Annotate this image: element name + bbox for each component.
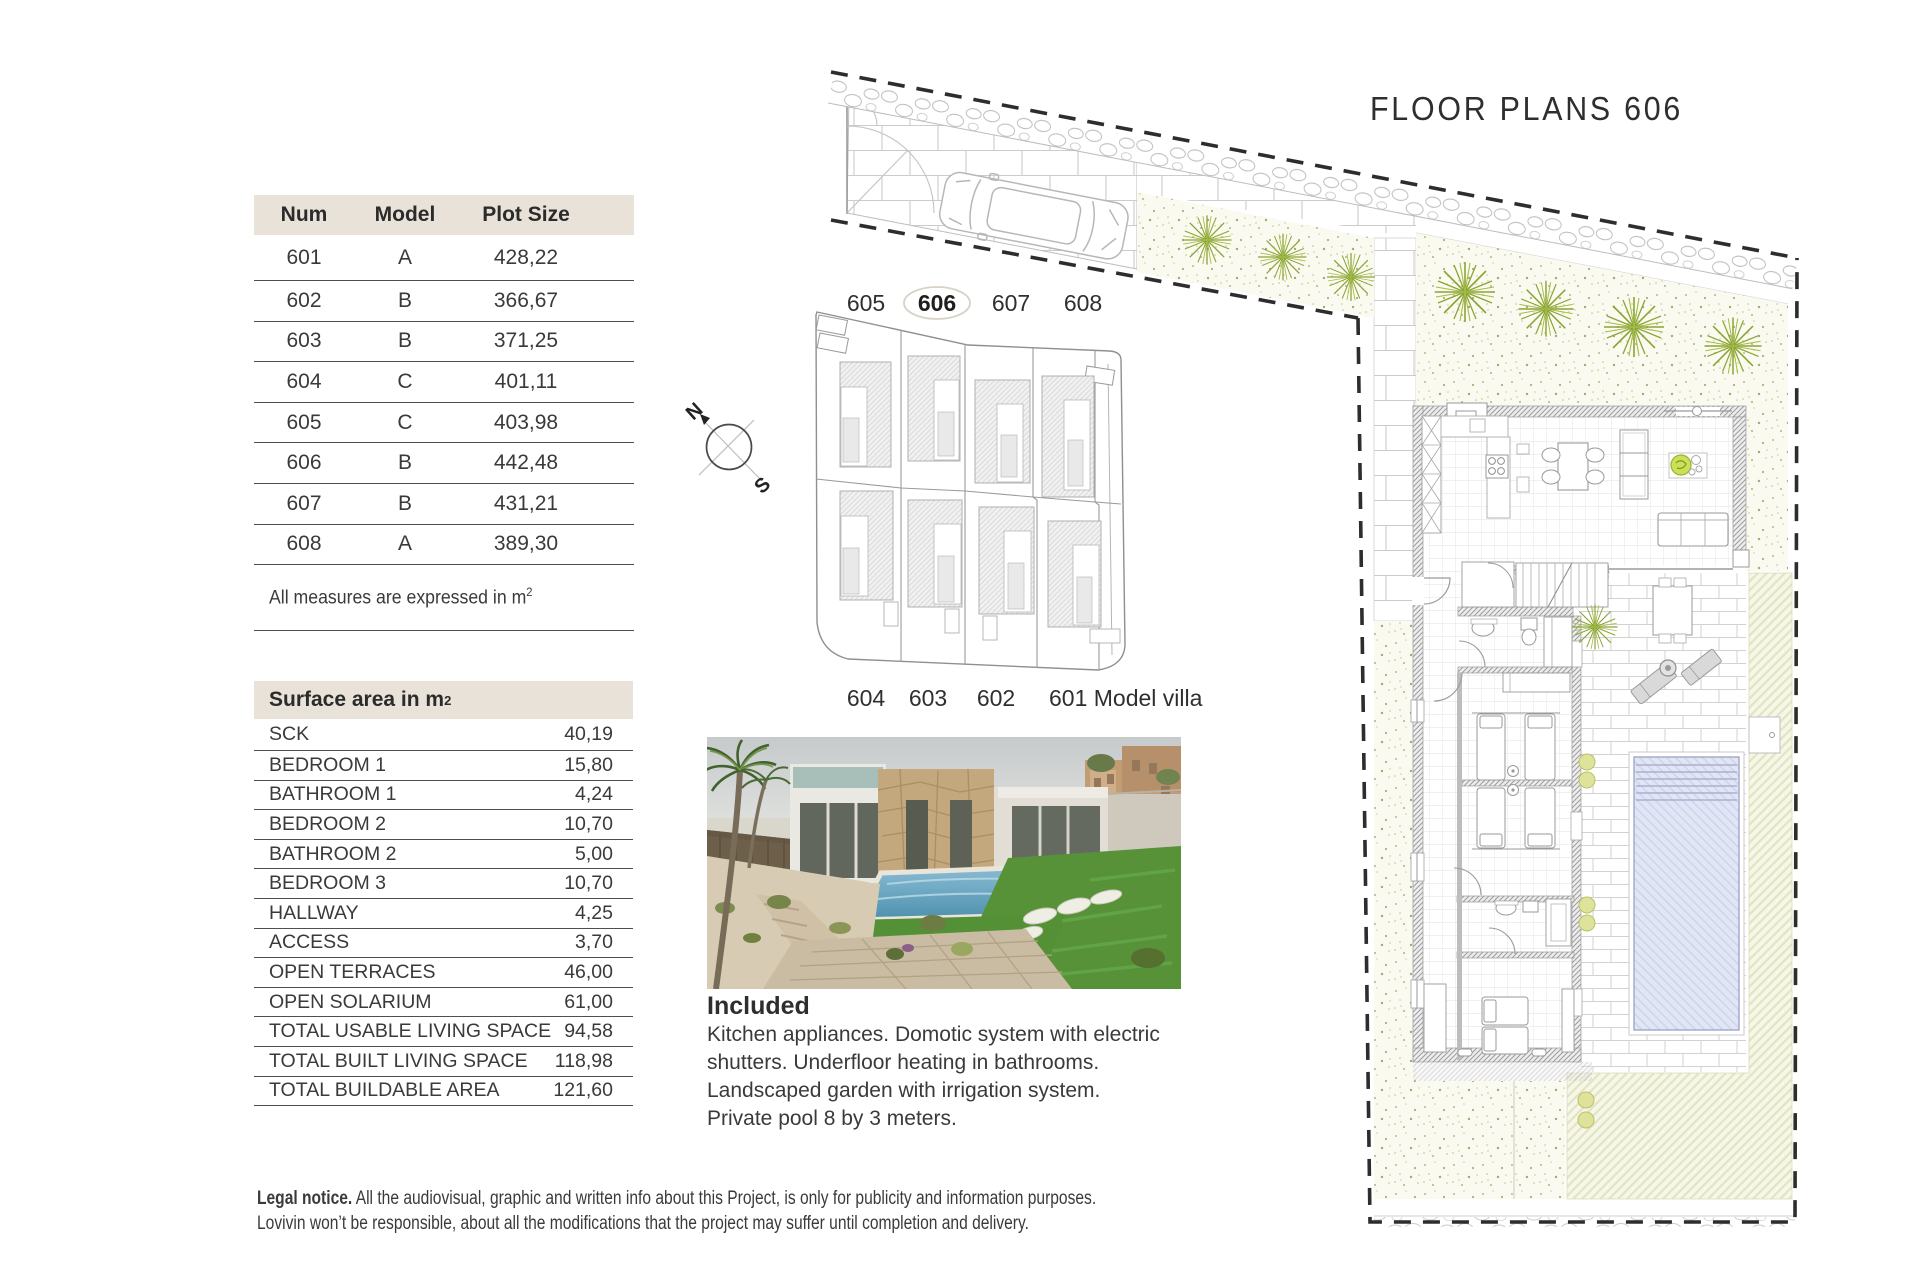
svg-text:601 Model villa: 601 Model villa <box>1049 685 1203 711</box>
svg-text:604: 604 <box>847 685 886 711</box>
svg-text:607: 607 <box>992 290 1030 316</box>
svg-text:602: 602 <box>977 685 1015 711</box>
svg-text:S: S <box>750 473 775 498</box>
svg-text:603: 603 <box>909 685 947 711</box>
svg-text:608: 608 <box>1064 290 1102 316</box>
svg-text:605: 605 <box>847 290 885 316</box>
svg-text:606: 606 <box>918 290 956 316</box>
